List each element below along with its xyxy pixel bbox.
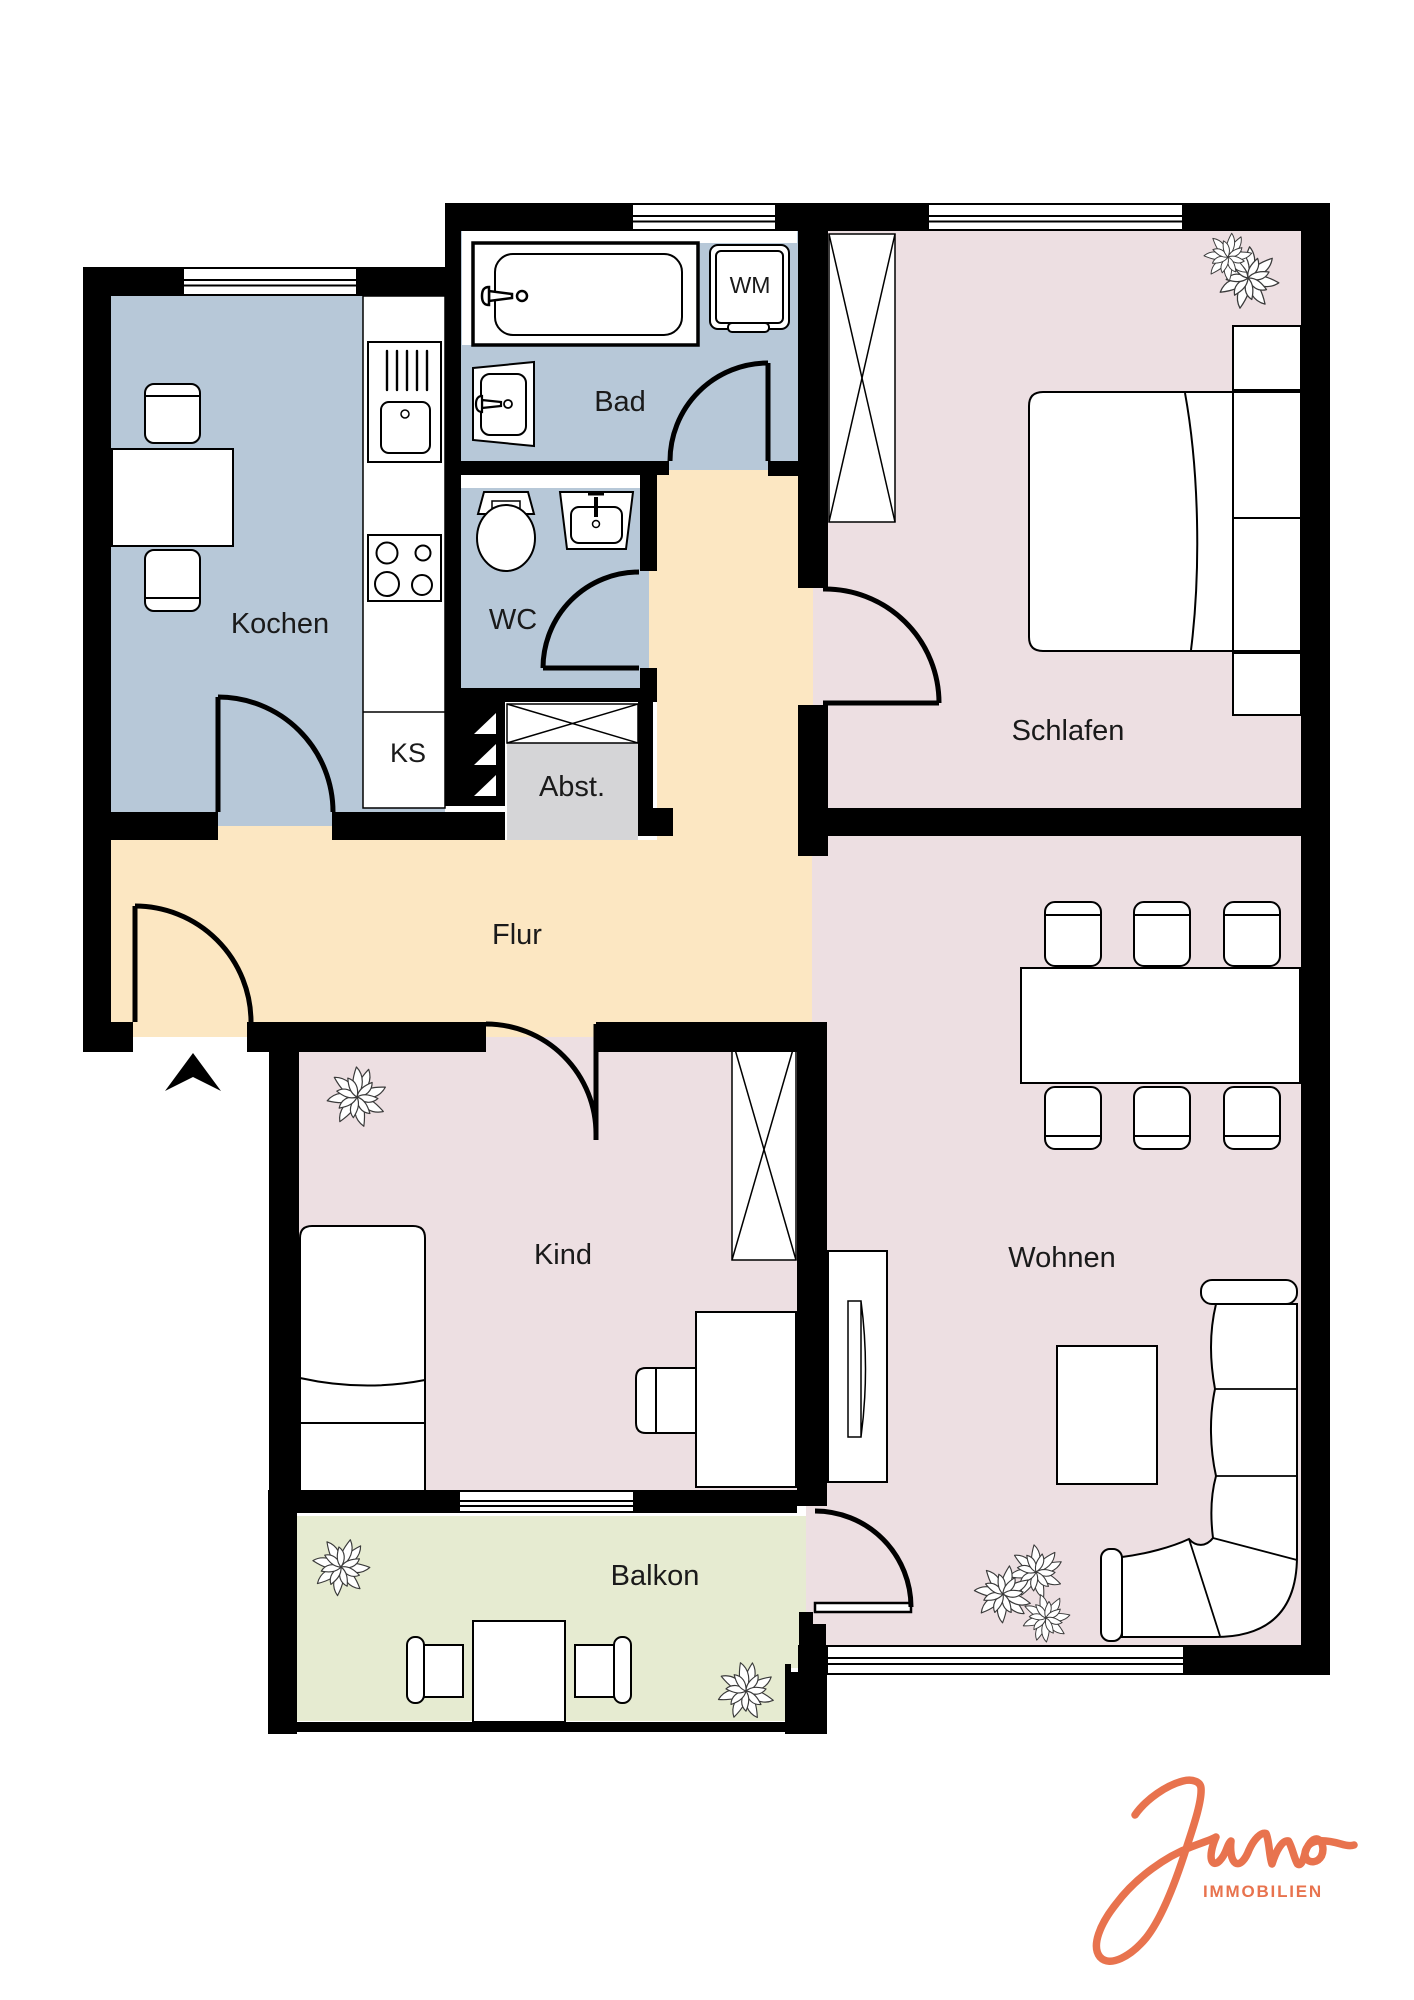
svg-text:Wohnen: Wohnen	[1008, 1242, 1116, 1274]
svg-text:Kind: Kind	[534, 1239, 592, 1271]
svg-text:Abst.: Abst.	[539, 771, 605, 803]
svg-text:KS: KS	[390, 738, 426, 768]
svg-text:Balkon: Balkon	[611, 1560, 700, 1592]
svg-text:Kochen: Kochen	[231, 608, 329, 640]
svg-text:IMMOBILIEN: IMMOBILIEN	[1203, 1882, 1323, 1901]
svg-text:Schlafen: Schlafen	[1012, 715, 1125, 747]
svg-text:Bad: Bad	[594, 386, 646, 418]
svg-text:Flur: Flur	[492, 919, 542, 951]
svg-text:WM: WM	[730, 272, 771, 298]
svg-text:WC: WC	[489, 604, 537, 636]
